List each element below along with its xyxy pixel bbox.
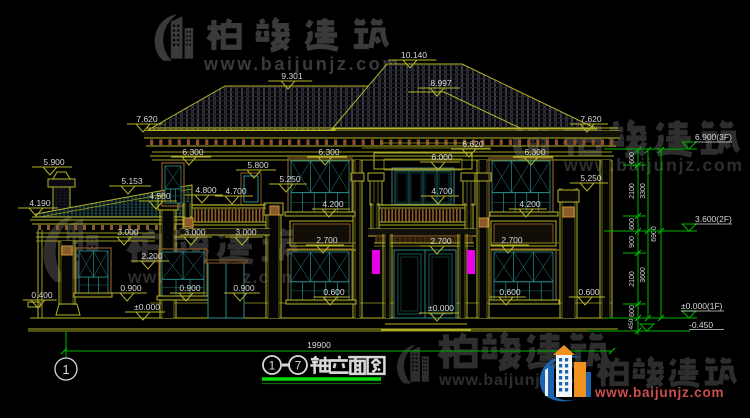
svg-text:3600: 3600 <box>640 267 647 283</box>
svg-text:1: 1 <box>269 359 276 373</box>
svg-text:±0.000(1F): ±0.000(1F) <box>681 301 723 311</box>
svg-text:4.500: 4.500 <box>149 191 171 201</box>
svg-text:4.200: 4.200 <box>519 199 541 209</box>
svg-text:2100: 2100 <box>629 183 636 199</box>
svg-text:0.400: 0.400 <box>31 290 53 300</box>
svg-text:9.301: 9.301 <box>281 71 303 81</box>
svg-text:5.250: 5.250 <box>279 174 301 184</box>
svg-text:6.000: 6.000 <box>431 152 453 162</box>
svg-text:5.153: 5.153 <box>121 176 143 186</box>
svg-text:3.000: 3.000 <box>184 227 206 237</box>
svg-text:3.000: 3.000 <box>117 227 139 237</box>
svg-text:www.baijunjz.com: www.baijunjz.com <box>563 155 744 175</box>
svg-text:2100: 2100 <box>629 271 636 287</box>
svg-text:±0.000: ±0.000 <box>428 303 454 313</box>
svg-text:3.600(2F): 3.600(2F) <box>695 214 732 224</box>
svg-text:0.600: 0.600 <box>499 287 521 297</box>
svg-text:1: 1 <box>62 362 69 377</box>
svg-text:7.620: 7.620 <box>136 114 158 124</box>
svg-text:7: 7 <box>295 359 302 373</box>
svg-text:600: 600 <box>629 218 636 230</box>
svg-text:600: 600 <box>629 305 636 317</box>
svg-text:6.900(3F): 6.900(3F) <box>695 132 732 142</box>
svg-text:2.700: 2.700 <box>430 236 452 246</box>
svg-text:4.700: 4.700 <box>225 186 247 196</box>
svg-text:6.300: 6.300 <box>318 147 340 157</box>
svg-text:8.997: 8.997 <box>430 78 452 88</box>
svg-text:0.600: 0.600 <box>578 287 600 297</box>
svg-text:5.900: 5.900 <box>43 157 65 167</box>
svg-text:6.620: 6.620 <box>462 139 484 149</box>
svg-text:4.190: 4.190 <box>29 198 51 208</box>
svg-text:2.700: 2.700 <box>501 235 523 245</box>
svg-text:900: 900 <box>629 236 636 248</box>
svg-text:3300: 3300 <box>640 183 647 199</box>
svg-text:3.000: 3.000 <box>235 227 257 237</box>
svg-text:±0.000: ±0.000 <box>134 302 160 312</box>
svg-text:4.700: 4.700 <box>431 186 453 196</box>
svg-text:6.300: 6.300 <box>182 147 204 157</box>
svg-text:10.140: 10.140 <box>401 50 427 60</box>
svg-text:7.620: 7.620 <box>580 114 602 124</box>
svg-text:4.200: 4.200 <box>322 199 344 209</box>
svg-text:5.800: 5.800 <box>247 160 269 170</box>
svg-text:0.600: 0.600 <box>323 287 345 297</box>
svg-text:6900: 6900 <box>651 226 658 242</box>
svg-text:4.800: 4.800 <box>195 185 217 195</box>
svg-text:-0.450: -0.450 <box>689 320 713 330</box>
svg-text:6.300: 6.300 <box>524 147 546 157</box>
svg-text:2.200: 2.200 <box>141 251 163 261</box>
svg-text:600: 600 <box>629 152 636 164</box>
svg-text:0.900: 0.900 <box>179 283 201 293</box>
svg-text:0.900: 0.900 <box>120 283 142 293</box>
svg-text:5.250: 5.250 <box>580 173 602 183</box>
svg-text:19900: 19900 <box>307 340 331 350</box>
svg-text:2.700: 2.700 <box>316 235 338 245</box>
svg-text:www.baijunjz.com: www.baijunjz.com <box>594 385 724 400</box>
svg-text:0.900: 0.900 <box>233 283 255 293</box>
svg-text:450: 450 <box>628 318 635 329</box>
